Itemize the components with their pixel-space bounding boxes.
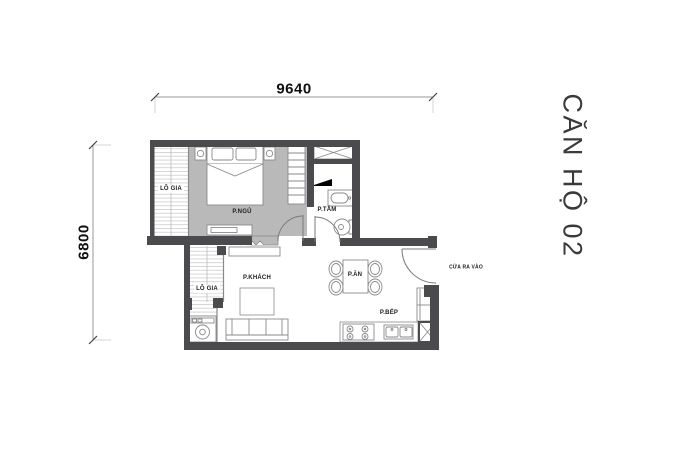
nightstand-left (195, 147, 206, 160)
entrance-label: CỬA RA VÀO (449, 266, 483, 271)
bed (207, 146, 263, 205)
entrance-door (402, 249, 436, 283)
washing-machine (189, 316, 216, 342)
room-label-living-room: P.KHÁCH (243, 275, 271, 281)
room-label-loggia-bottom: LÔ GIA (194, 285, 220, 293)
dimension-height-label: 6800 (76, 224, 93, 259)
room-label-loggia-top: LÔ GIA (158, 185, 184, 193)
bathroom-door (315, 216, 340, 242)
coffee-table (240, 288, 274, 315)
floor-plan-page: 9640 6800 LÔ GIA P.NGỦ P.TẮM P.KHÁCH P.Ă… (0, 0, 675, 450)
shower-symbol (311, 179, 332, 186)
nightstand-right (264, 147, 275, 160)
toilet (334, 219, 354, 235)
dimension-width-label: 9640 (276, 81, 311, 98)
sofa (226, 319, 288, 340)
kitchen-sink (384, 325, 413, 339)
room-label-dining: P.ĂN (348, 272, 362, 278)
room-label-bathroom: P.TẮM (318, 207, 337, 213)
shaft-box (314, 146, 353, 159)
bathroom-sink (328, 190, 353, 206)
stove (343, 324, 374, 340)
room-label-kitchen: P.BẾP (380, 310, 398, 316)
bedroom-dresser (207, 225, 252, 235)
wardrobe (288, 146, 305, 204)
unit-title: CĂN HỘ 02 (557, 93, 588, 258)
room-label-bedroom: P.NGỦ (232, 209, 251, 215)
